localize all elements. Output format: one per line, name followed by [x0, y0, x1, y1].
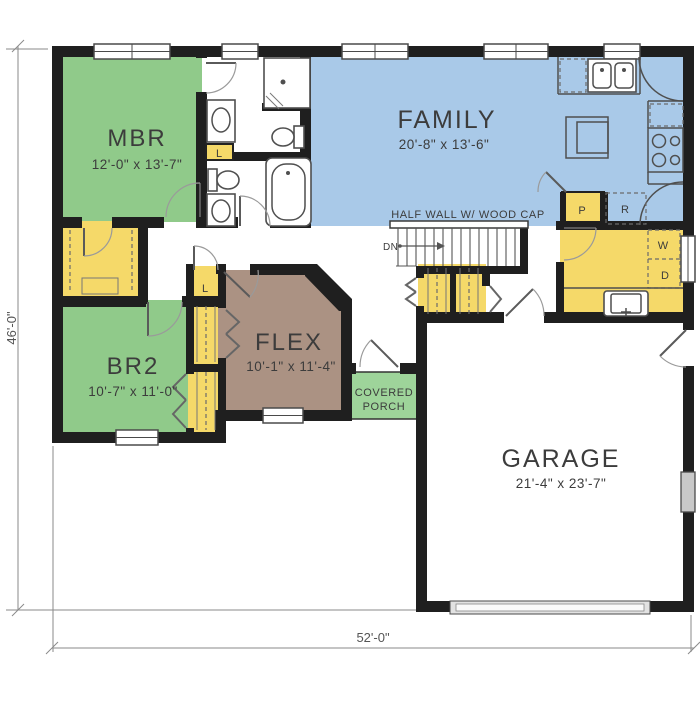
- stairs: [396, 228, 515, 266]
- room-label-flex: FLEX: [255, 329, 323, 356]
- linen-hall-label: L: [202, 283, 208, 295]
- bifold-door-hall-closet: [490, 286, 501, 312]
- room-label-mbr: MBR: [107, 125, 166, 152]
- room-dims-family: 20'-8" x 13'-6": [399, 137, 490, 152]
- height-dimension-label: 46'-0": [4, 311, 19, 345]
- bifold-door-coat-closet: [406, 278, 416, 306]
- porch-label-line1: COVERED: [355, 387, 414, 399]
- washer-label: W: [658, 240, 669, 252]
- room-dims-flex: 10'-1" x 11'-4": [246, 359, 336, 374]
- room-label-family: FAMILY: [397, 106, 496, 134]
- dryer-label: D: [661, 270, 669, 282]
- room-label-br2: BR2: [107, 353, 160, 380]
- floor-plan-canvas: MBR 12'-0" x 13'-7" FAMILY 20'-8" x 13'-…: [0, 0, 700, 700]
- stairs-dn-label: DN: [383, 242, 398, 253]
- room-dims-garage: 21'-4" x 23'-7": [516, 476, 607, 491]
- bath2-fixtures: [207, 158, 311, 226]
- down-arrow-icon: [437, 242, 445, 250]
- toilet-icon: [208, 169, 217, 191]
- half-wall: [390, 221, 528, 228]
- porch-label-line2: PORCH: [363, 401, 406, 413]
- pantry-label: P: [578, 205, 585, 217]
- width-dimension-label: 52'-0": [356, 630, 390, 645]
- vanity-icon: [207, 100, 235, 142]
- linen-bath-label: L: [216, 148, 222, 160]
- room-dims-br2: 10'-7" x 11'-0": [88, 384, 178, 399]
- half-wall-note: HALF WALL W/ WOOD CAP: [391, 209, 545, 221]
- refrigerator-label: R: [621, 204, 629, 216]
- garage-window: [681, 472, 695, 512]
- vanity-icon: [207, 194, 235, 226]
- room-label-garage: GARAGE: [502, 445, 621, 473]
- toilet-icon: [294, 126, 304, 148]
- garage-door-panel: [456, 604, 644, 611]
- room-dims-mbr: 12'-0" x 13'-7": [92, 157, 183, 172]
- floor-plan-page: MBR 12'-0" x 13'-7" FAMILY 20'-8" x 13'-…: [0, 0, 700, 700]
